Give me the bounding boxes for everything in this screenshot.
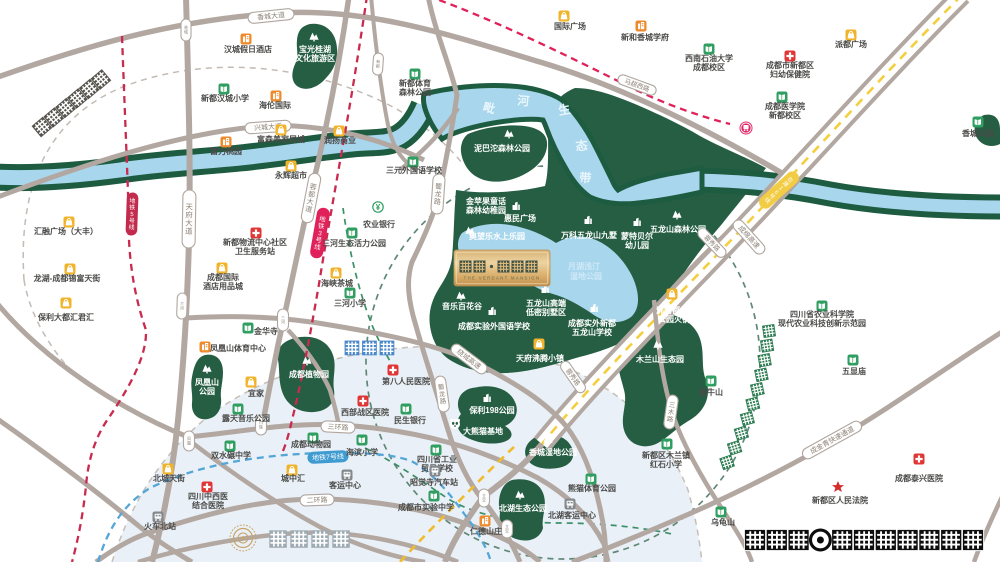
- svg-text:四川中西医: 四川中西医: [188, 491, 228, 501]
- svg-text:民生银行: 民生银行: [394, 415, 426, 425]
- svg-text:北城天街: 北城天街: [153, 473, 185, 483]
- svg-text:西部战区医院: 西部战区医院: [341, 407, 389, 417]
- svg-text:新都物流中心社区: 新都物流中心社区: [223, 237, 287, 247]
- svg-text:香城公园: 香城公园: [961, 128, 994, 138]
- svg-text:派都广场: 派都广场: [835, 39, 867, 49]
- svg-text:新都校区: 新都校区: [769, 110, 801, 120]
- svg-text:森林公园: 森林公园: [399, 87, 431, 97]
- svg-text:成都市新都区: 成都市新都区: [766, 60, 814, 70]
- svg-text:宜家: 宜家: [248, 388, 265, 398]
- svg-text:第八人民医院: 第八人民医院: [382, 376, 430, 386]
- svg-text:海峡茶城: 海峡茶城: [321, 278, 353, 288]
- svg-text:沸腾都火: 沸腾都火: [656, 305, 689, 315]
- svg-text:号: 号: [129, 218, 135, 225]
- svg-text:汇融广场（大丰）: 汇融广场（大丰）: [34, 226, 98, 236]
- svg-text:五龙山森林公园: 五龙山森林公园: [650, 224, 706, 234]
- svg-text:富力桃园: 富力桃园: [210, 146, 242, 156]
- svg-text:河: 河: [180, 305, 184, 311]
- svg-text:河: 河: [516, 92, 530, 108]
- svg-text:国际广场: 国际广场: [554, 21, 586, 31]
- svg-text:双水碾中学: 双水碾中学: [211, 450, 251, 460]
- svg-text:线: 线: [128, 223, 134, 231]
- svg-text:成都市实验中学: 成都市实验中学: [398, 502, 454, 512]
- svg-text:客运中心: 客运中心: [328, 480, 361, 490]
- svg-text:幼儿园: 幼儿园: [625, 240, 649, 250]
- svg-text:THE VERDANT MANSION: THE VERDANT MANSION: [464, 276, 541, 281]
- svg-text:交: 交: [505, 528, 509, 534]
- svg-text:蒙特贝尔: 蒙特贝尔: [621, 231, 653, 241]
- svg-text:金华寺: 金华寺: [253, 326, 278, 336]
- svg-text:木兰山生态园: 木兰山生态园: [635, 354, 684, 364]
- svg-text:蜀: 蜀: [435, 183, 443, 191]
- svg-text:新都汉城小学: 新都汉城小学: [201, 93, 249, 103]
- svg-text:露天音乐公园: 露天音乐公园: [222, 413, 270, 423]
- svg-text:公园火锅: 公园火锅: [658, 314, 690, 324]
- svg-text:成都实验外国语学校: 成都实验外国语学校: [458, 321, 531, 331]
- svg-text:海滨小学: 海滨小学: [346, 447, 378, 457]
- svg-text:成都国际: 成都国际: [207, 272, 239, 282]
- svg-text:昭觉寺汽车站: 昭觉寺汽车站: [410, 477, 458, 487]
- svg-text:龙湖-成都锦富天街: 龙湖-成都锦富天街: [33, 273, 101, 283]
- svg-text:地: 地: [129, 197, 135, 205]
- svg-text:河: 河: [281, 319, 285, 325]
- svg-text:都: 都: [376, 63, 380, 69]
- svg-text:永辉超市: 永辉超市: [274, 170, 307, 180]
- svg-text:妇幼保健院: 妇幼保健院: [769, 69, 810, 79]
- svg-text:带: 带: [579, 170, 592, 186]
- svg-text:现代农业科技创新示范园: 现代农业科技创新示范园: [778, 318, 866, 328]
- svg-text:万科五龙山九墅: 万科五龙山九墅: [560, 230, 617, 240]
- svg-text:公园: 公园: [199, 387, 215, 396]
- svg-text:音乐百花谷: 音乐百花谷: [442, 301, 483, 311]
- svg-text:五龙山高端: 五龙山高端: [526, 298, 566, 308]
- svg-text:香城湿地公园: 香城湿地公园: [528, 447, 577, 457]
- svg-text:新都区木兰镇: 新都区木兰镇: [642, 450, 690, 460]
- svg-text:成都泰兴医院: 成都泰兴医院: [895, 473, 943, 483]
- svg-text:保利大都汇君汇: 保利大都汇君汇: [37, 312, 94, 322]
- svg-text:富森美家居城: 富森美家居城: [257, 134, 305, 144]
- svg-text:西南石油大学: 西南石油大学: [685, 53, 733, 63]
- svg-text:卫生服务站: 卫生服务站: [235, 246, 275, 256]
- svg-text:成都医学院: 成都医学院: [765, 101, 805, 111]
- svg-text:城中汇: 城中汇: [281, 473, 305, 483]
- svg-text:生: 生: [557, 101, 571, 118]
- svg-text:奥望乐水上乐园: 奥望乐水上乐园: [468, 231, 525, 241]
- svg-text:酒店用品城: 酒店用品城: [203, 281, 243, 291]
- svg-text:道: 道: [185, 226, 193, 236]
- svg-text:文化旅游区: 文化旅游区: [295, 53, 335, 63]
- svg-text:熊猫体育公园: 熊猫体育公园: [568, 483, 616, 493]
- svg-text:仁德山庄: 仁德山庄: [470, 526, 502, 536]
- svg-text:森林幼稚园: 森林幼稚园: [466, 205, 506, 215]
- svg-text:成都动物园: 成都动物园: [291, 439, 331, 449]
- svg-text:铁: 铁: [129, 203, 135, 211]
- svg-text:结合医院: 结合医院: [192, 500, 224, 510]
- svg-text:惠民广场: 惠民广场: [504, 213, 536, 223]
- svg-text:凤凰山体育中心: 凤凰山体育中心: [210, 343, 266, 353]
- svg-text:海伦国际: 海伦国际: [259, 100, 291, 110]
- svg-text:五龙山学校: 五龙山学校: [572, 327, 613, 337]
- svg-text:成都实外新都: 成都实外新都: [568, 318, 616, 328]
- svg-text:交: 交: [482, 497, 486, 503]
- svg-text:北湖客运中心: 北湖客运中心: [548, 510, 596, 520]
- svg-text:态: 态: [575, 138, 588, 154]
- svg-text:四川省农业科学院: 四川省农业科学院: [790, 309, 854, 319]
- svg-text:火车北站: 火车北站: [144, 521, 176, 531]
- svg-text:新和香城学府: 新和香城学府: [621, 32, 669, 42]
- svg-text:汉城假日酒店: 汉城假日酒店: [224, 44, 272, 54]
- svg-text:陕: 陕: [259, 424, 263, 430]
- svg-text:凰: 凰: [187, 441, 191, 446]
- svg-text:三河小学: 三河小学: [334, 298, 366, 308]
- svg-text:三河生态活力公园: 三河生态活力公园: [322, 238, 386, 248]
- svg-text:大熊猫基地: 大熊猫基地: [463, 426, 503, 436]
- svg-text:新都区人民法院: 新都区人民法院: [812, 495, 868, 505]
- svg-text:保利198公园: 保利198公园: [468, 405, 514, 415]
- svg-text:成都校区: 成都校区: [693, 62, 725, 72]
- svg-text:黄牛山: 黄牛山: [699, 387, 723, 397]
- svg-text:金苹果童话: 金苹果童话: [465, 196, 506, 206]
- svg-text:乌龟山: 乌龟山: [711, 517, 735, 527]
- svg-text:五显庙: 五显庙: [842, 366, 866, 376]
- svg-text:宝光桂湖: 宝光桂湖: [299, 44, 331, 54]
- svg-text:月湖浅汀: 月湖浅汀: [567, 261, 600, 271]
- svg-text:凤凰山: 凤凰山: [195, 377, 219, 387]
- svg-text:农业银行: 农业银行: [362, 219, 395, 229]
- svg-text:龙: 龙: [434, 189, 442, 198]
- svg-text:新都体育: 新都体育: [399, 78, 431, 88]
- svg-text:红石小学: 红石小学: [650, 459, 682, 469]
- svg-text:泥巴沱森林公园: 泥巴沱森林公园: [474, 143, 530, 153]
- svg-text:四川省工业: 四川省工业: [417, 454, 457, 464]
- svg-text:三元外国语学校: 三元外国语学校: [386, 165, 443, 175]
- svg-text:低密别墅区: 低密别墅区: [525, 307, 566, 317]
- svg-text:北湖生态公园: 北湖生态公园: [499, 503, 547, 513]
- svg-text:城: 城: [184, 29, 188, 35]
- svg-text:润扬商业: 润扬商业: [324, 135, 356, 145]
- svg-text:成都植物园: 成都植物园: [289, 369, 329, 379]
- svg-text:天府沸腾小镇: 天府沸腾小镇: [516, 353, 564, 363]
- svg-text:湿地公园: 湿地公园: [570, 271, 602, 281]
